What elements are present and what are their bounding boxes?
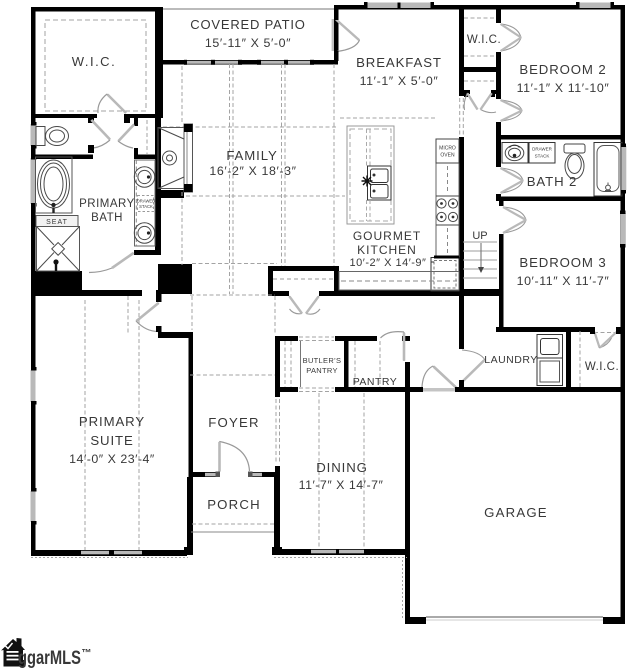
svg-text:KITCHEN: KITCHEN: [357, 243, 417, 257]
svg-text:FOYER: FOYER: [208, 415, 259, 430]
svg-text:W.I.C.: W.I.C.: [585, 361, 619, 373]
svg-text:BEDROOM 3: BEDROOM 3: [519, 255, 606, 270]
svg-text:LAUNDRY: LAUNDRY: [484, 354, 538, 366]
svg-text:14′-0″ X 23′-4″: 14′-0″ X 23′-4″: [69, 452, 155, 466]
svg-text:W.I.C.: W.I.C.: [72, 54, 116, 69]
svg-text:10′-2″ X 14′-9″: 10′-2″ X 14′-9″: [350, 257, 427, 269]
svg-text:DRAWER: DRAWER: [137, 198, 155, 203]
svg-text:UP: UP: [472, 230, 487, 242]
svg-text:MICRO: MICRO: [439, 146, 456, 152]
svg-text:PRIMARY: PRIMARY: [79, 198, 135, 210]
svg-text:DRAWER: DRAWER: [532, 147, 553, 152]
svg-text:11′-1″ X 11′-10″: 11′-1″ X 11′-10″: [517, 81, 610, 95]
svg-text:PRIMARY: PRIMARY: [79, 414, 145, 429]
svg-text:PORCH: PORCH: [207, 497, 261, 512]
svg-text:ggarMLS: ggarMLS: [18, 648, 81, 669]
svg-text:10′-11″ X 11′-7″: 10′-11″ X 11′-7″: [517, 274, 610, 288]
svg-text:16′-2″ X 18′-3″: 16′-2″ X 18′-3″: [209, 164, 296, 178]
svg-text:11′-1″ X 5′-0″: 11′-1″ X 5′-0″: [360, 74, 439, 88]
svg-text:PANTRY: PANTRY: [306, 366, 338, 375]
svg-text:OVEN: OVEN: [440, 153, 455, 159]
svg-text:FAMILY: FAMILY: [226, 148, 277, 163]
svg-text:STACK: STACK: [139, 204, 153, 209]
svg-text:BATH 2: BATH 2: [527, 174, 578, 189]
svg-text:BEDROOM 2: BEDROOM 2: [519, 62, 606, 77]
svg-text:11′-7″ X 14′-7″: 11′-7″ X 14′-7″: [299, 478, 384, 492]
svg-text:™: ™: [82, 648, 92, 659]
svg-text:15′-11″ X 5′-0″: 15′-11″ X 5′-0″: [205, 36, 291, 50]
svg-text:SUITE: SUITE: [90, 433, 133, 448]
svg-text:GARAGE: GARAGE: [484, 505, 548, 520]
svg-text:PANTRY: PANTRY: [353, 376, 398, 388]
svg-text:DINING: DINING: [316, 460, 368, 475]
svg-text:COVERED PATIO: COVERED PATIO: [190, 17, 305, 32]
svg-text:BATH: BATH: [91, 212, 123, 224]
svg-text:W.I.C.: W.I.C.: [467, 34, 501, 46]
svg-text:STACK: STACK: [535, 154, 550, 159]
svg-text:BUTLER’S: BUTLER’S: [303, 356, 342, 365]
svg-text:SEAT: SEAT: [46, 219, 68, 226]
svg-text:GOURMET: GOURMET: [353, 229, 421, 243]
svg-text:BREAKFAST: BREAKFAST: [356, 55, 442, 70]
